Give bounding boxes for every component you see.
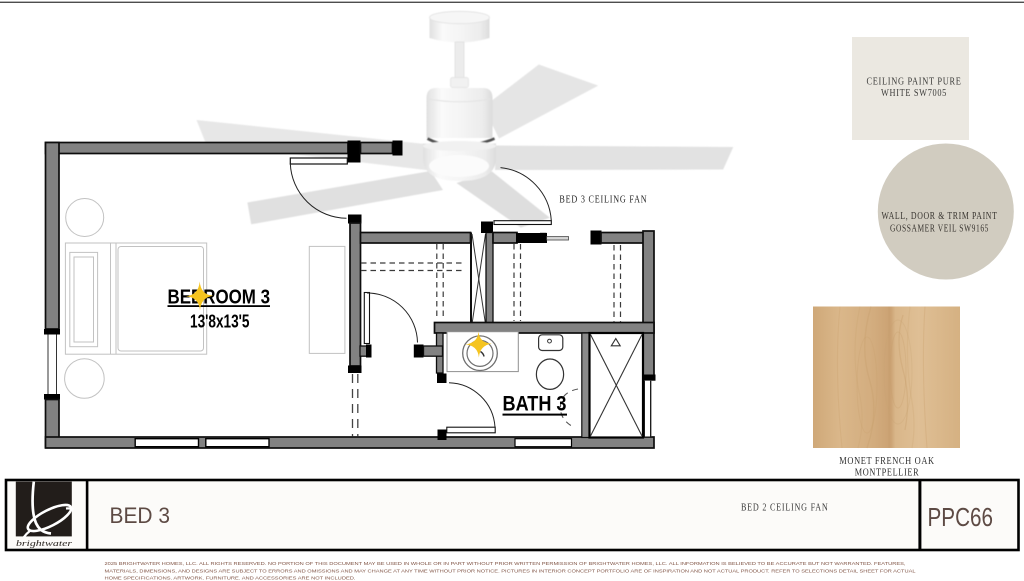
svg-text:brightwater: brightwater [16, 538, 73, 548]
svg-text:MONET FRENCH OAK: MONET FRENCH OAK [839, 456, 935, 467]
svg-text:13'8x13'5: 13'8x13'5 [190, 311, 250, 331]
svg-text:HOME SPECIFICATIONS. ARTWORK.: HOME SPECIFICATIONS. ARTWORK. FURNITURE.… [105, 576, 356, 581]
svg-text:BED 2 CEILING FAN: BED 2 CEILING FAN [741, 502, 829, 513]
svg-text:MONTPELLIER: MONTPELLIER [855, 468, 920, 479]
svg-text:BED 3 CEILING FAN: BED 3 CEILING FAN [559, 194, 647, 205]
svg-text:MATERIALS, DIMENSIONS, AND DES: MATERIALS, DIMENSIONS, AND DESIGNS ARE S… [105, 568, 916, 573]
svg-text:PPC66: PPC66 [928, 504, 994, 532]
svg-text:BATH 3: BATH 3 [503, 392, 567, 415]
svg-text:WHITE SW7005: WHITE SW7005 [881, 88, 947, 99]
svg-text:BED 3: BED 3 [110, 503, 171, 528]
svg-text:BEDROOM 3: BEDROOM 3 [168, 286, 271, 309]
svg-text:2025 BRIGHTWATER HOMES, LLC. A: 2025 BRIGHTWATER HOMES, LLC. ALL RIGHTS … [105, 561, 906, 566]
svg-text:GOSSAMER VEIL SW9165: GOSSAMER VEIL SW9165 [890, 224, 989, 235]
svg-text:WALL, DOOR & TRIM PAINT: WALL, DOOR & TRIM PAINT [882, 211, 998, 222]
svg-text:CEILING PAINT PURE: CEILING PAINT PURE [867, 76, 962, 87]
